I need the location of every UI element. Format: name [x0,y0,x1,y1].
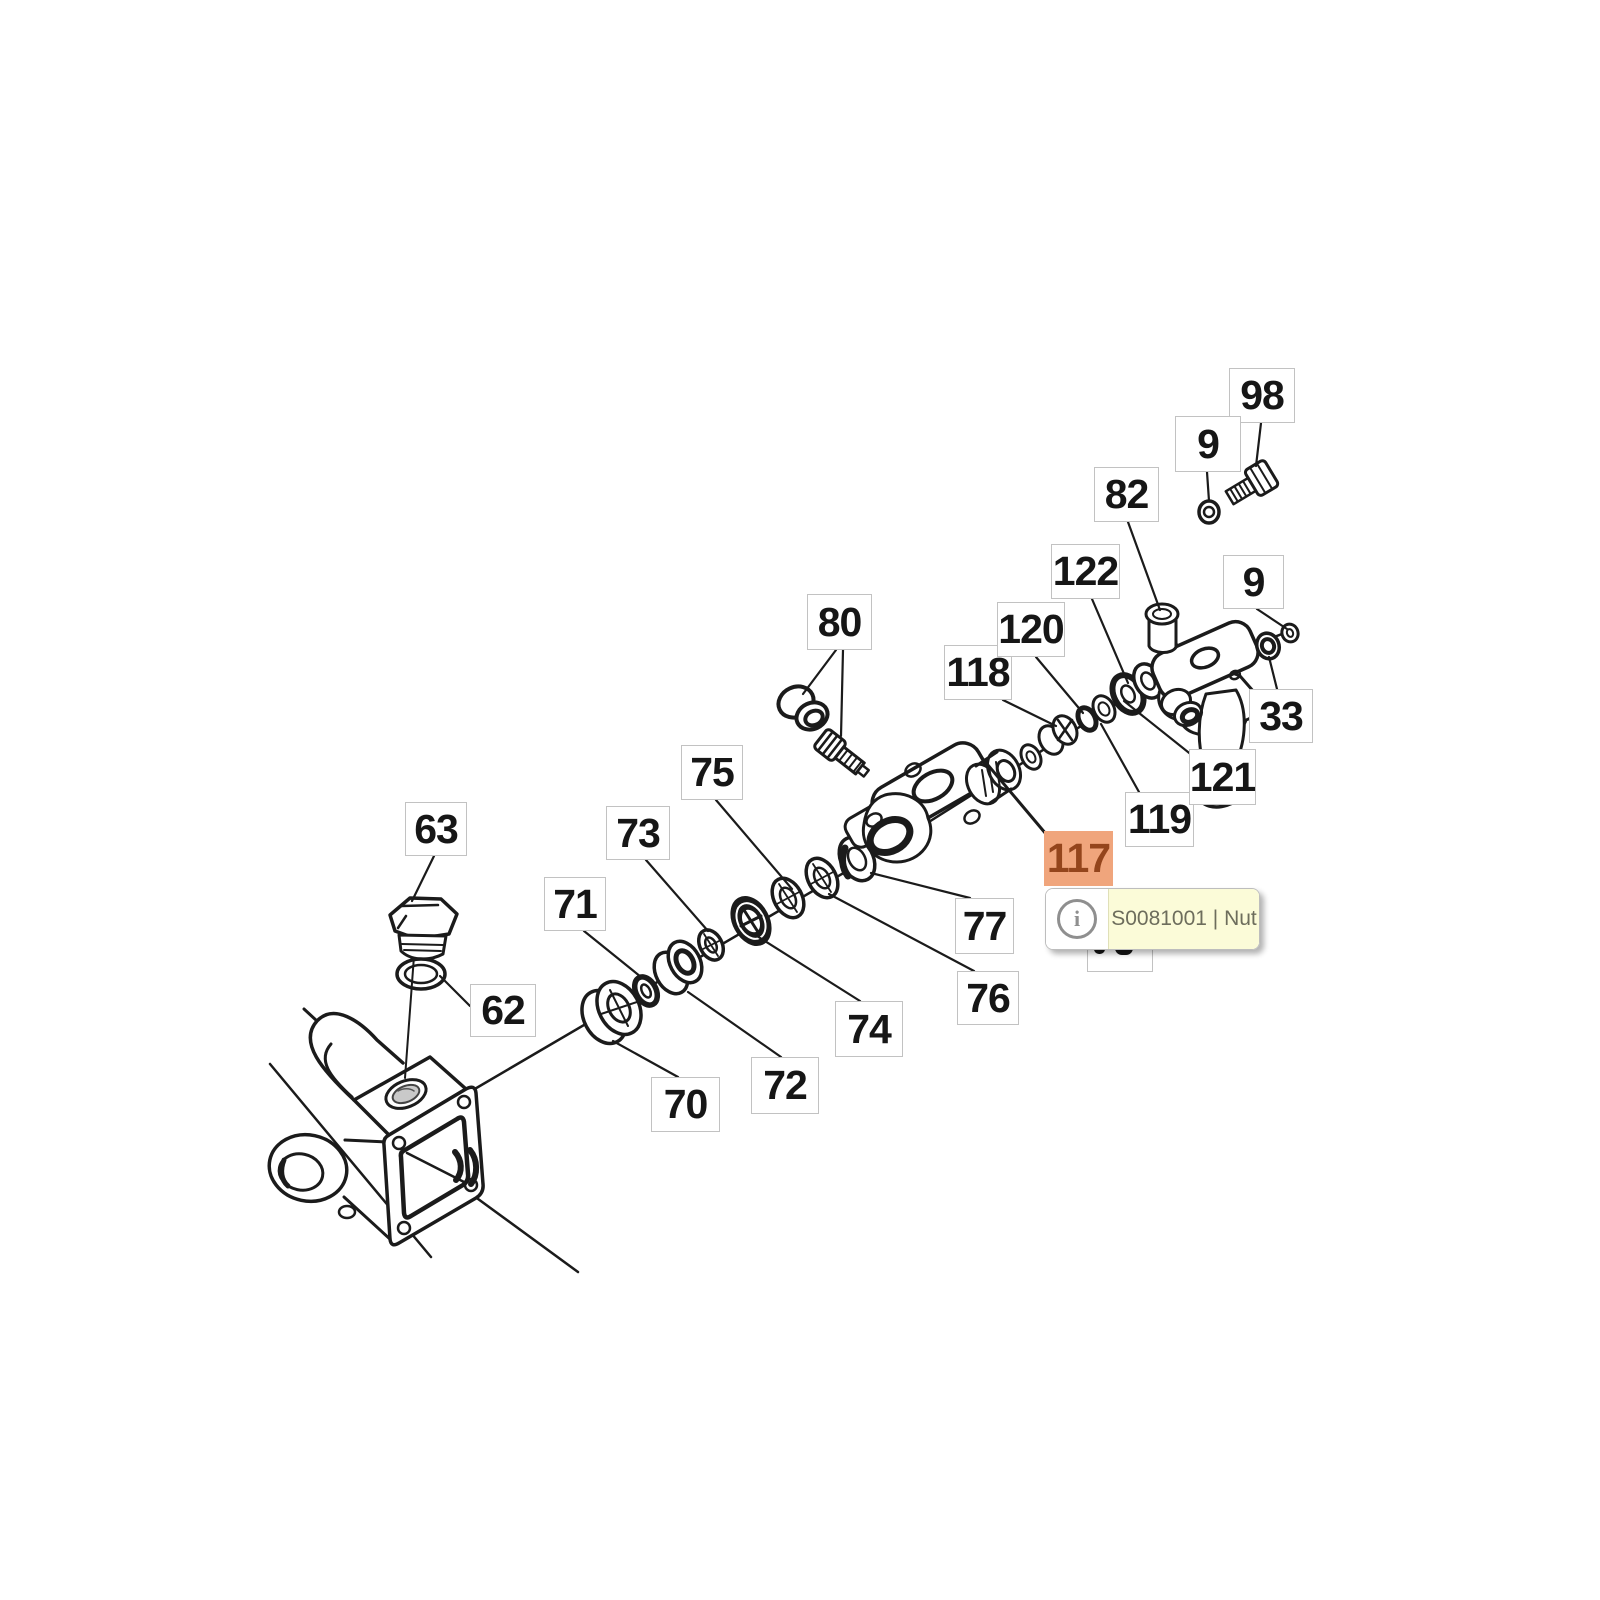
callout-121[interactable]: 121 [1189,749,1256,805]
callout-73[interactable]: 73 [606,806,670,860]
callout-98[interactable]: 98 [1229,368,1295,423]
callout-74[interactable]: 74 [835,1001,903,1057]
callout-122[interactable]: 122 [1051,544,1120,599]
parts-catalog-canvas: 6373757162707274767780821181201229899331… [0,0,1600,1600]
callout-63[interactable]: 63 [405,802,467,856]
tooltip-icon-panel: i [1046,889,1109,949]
callout-119[interactable]: 119 [1125,792,1194,847]
callout-80[interactable]: 80 [807,594,872,650]
tooltip-part-text: S0081001 | Nut [1111,907,1257,931]
callout-72[interactable]: 72 [751,1057,819,1114]
callout-117[interactable]: 117 [1044,831,1113,886]
callout-62[interactable]: 62 [470,984,536,1037]
callout-layer: 6373757162707274767780821181201229899331… [0,0,1600,1600]
callout-71[interactable]: 71 [544,877,606,931]
callout-120[interactable]: 120 [997,602,1065,657]
callout-9[interactable]: 9 [1175,416,1241,472]
part-tooltip: i S0081001 | Nut [1045,888,1260,950]
callout-77[interactable]: 77 [955,898,1014,954]
callout-76[interactable]: 76 [957,971,1019,1025]
info-icon-glyph: i [1074,906,1080,932]
tooltip-text-panel: S0081001 | Nut [1109,889,1259,949]
callout-33[interactable]: 33 [1249,689,1313,743]
callout-70[interactable]: 70 [651,1077,720,1132]
callout-82[interactable]: 82 [1094,467,1159,522]
callout-9[interactable]: 9 [1223,555,1284,609]
info-icon: i [1057,899,1097,939]
callout-75[interactable]: 75 [681,745,743,800]
